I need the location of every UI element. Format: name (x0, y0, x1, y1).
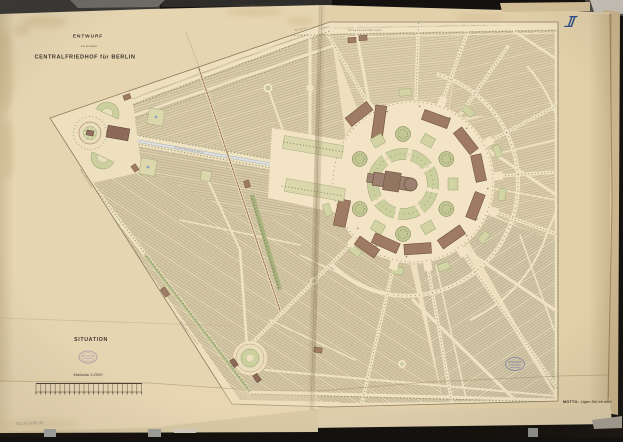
svg-text:MOTTO: Lägen Sie' ich ruhe': MOTTO: Lägen Sie' ich ruhe' (563, 400, 612, 404)
svg-text:zu einem: zu einem (81, 44, 97, 48)
svg-text:SITUATION: SITUATION (74, 337, 108, 343)
svg-text:Maßstab 1:2000: Maßstab 1:2000 (74, 372, 104, 377)
svg-text:ENTWURF: ENTWURF (73, 34, 103, 40)
svg-text:512 A 1896-06: 512 A 1896-06 (16, 420, 44, 426)
svg-text:CENTRALFRIEDHOF für BERLIN: CENTRALFRIEDHOF für BERLIN (35, 54, 136, 60)
